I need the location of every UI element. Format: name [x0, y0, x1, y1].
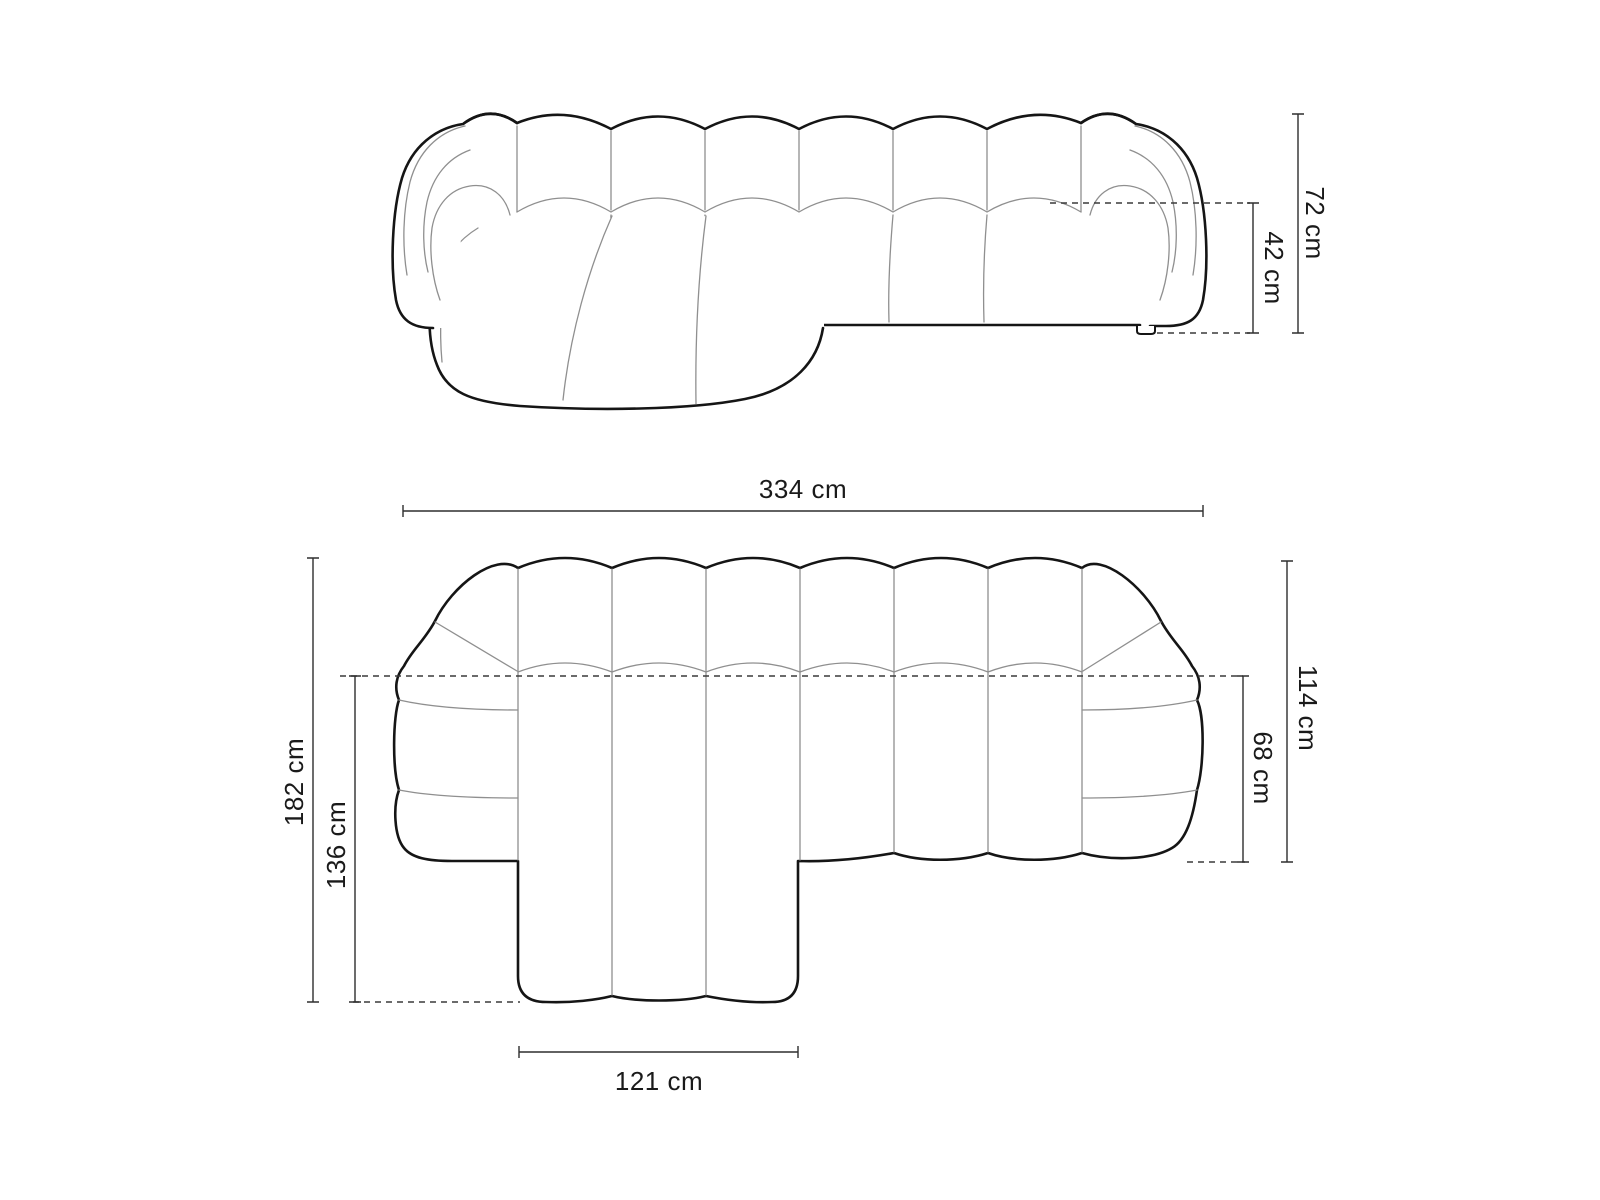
front-height-dimension: 72 cm	[1292, 114, 1330, 333]
diagram-page: 72 cm 42 cm 334 cm	[0, 0, 1600, 1200]
dim-label-top-side-depth: 114 cm	[1293, 665, 1323, 751]
top-chaise-depth-dimension: 136 cm	[321, 676, 361, 1002]
dim-label-top-total-depth: 182 cm	[279, 738, 309, 826]
top-seat-depth-dimension: 68 cm	[1237, 676, 1278, 862]
top-depth-dimension: 182 cm	[279, 558, 319, 1002]
top-width-dimension: 334 cm	[403, 474, 1203, 517]
dim-label-top-chaise-total-depth: 136 cm	[321, 801, 351, 889]
front-foot	[1137, 326, 1155, 334]
dim-label-top-seat-depth: 68 cm	[1248, 731, 1278, 804]
dim-label-front-seat-height: 42 cm	[1259, 231, 1289, 304]
front-chaise-fill	[429, 214, 824, 409]
front-seat-height-dimension: 42 cm	[1247, 203, 1289, 333]
dim-label-front-total-height: 72 cm	[1300, 186, 1330, 259]
dim-label-top-chaise-width: 121 cm	[615, 1066, 703, 1096]
top-view	[394, 558, 1203, 1002]
top-side-depth-dimension: 114 cm	[1281, 561, 1323, 862]
top-chaise-width-dimension: 121 cm	[519, 1046, 798, 1096]
sofa-dimension-diagram: 72 cm 42 cm 334 cm	[0, 0, 1600, 1200]
front-view	[393, 114, 1207, 409]
front-left-arm-fill	[393, 122, 463, 328]
dim-label-top-total-width: 334 cm	[759, 474, 847, 504]
